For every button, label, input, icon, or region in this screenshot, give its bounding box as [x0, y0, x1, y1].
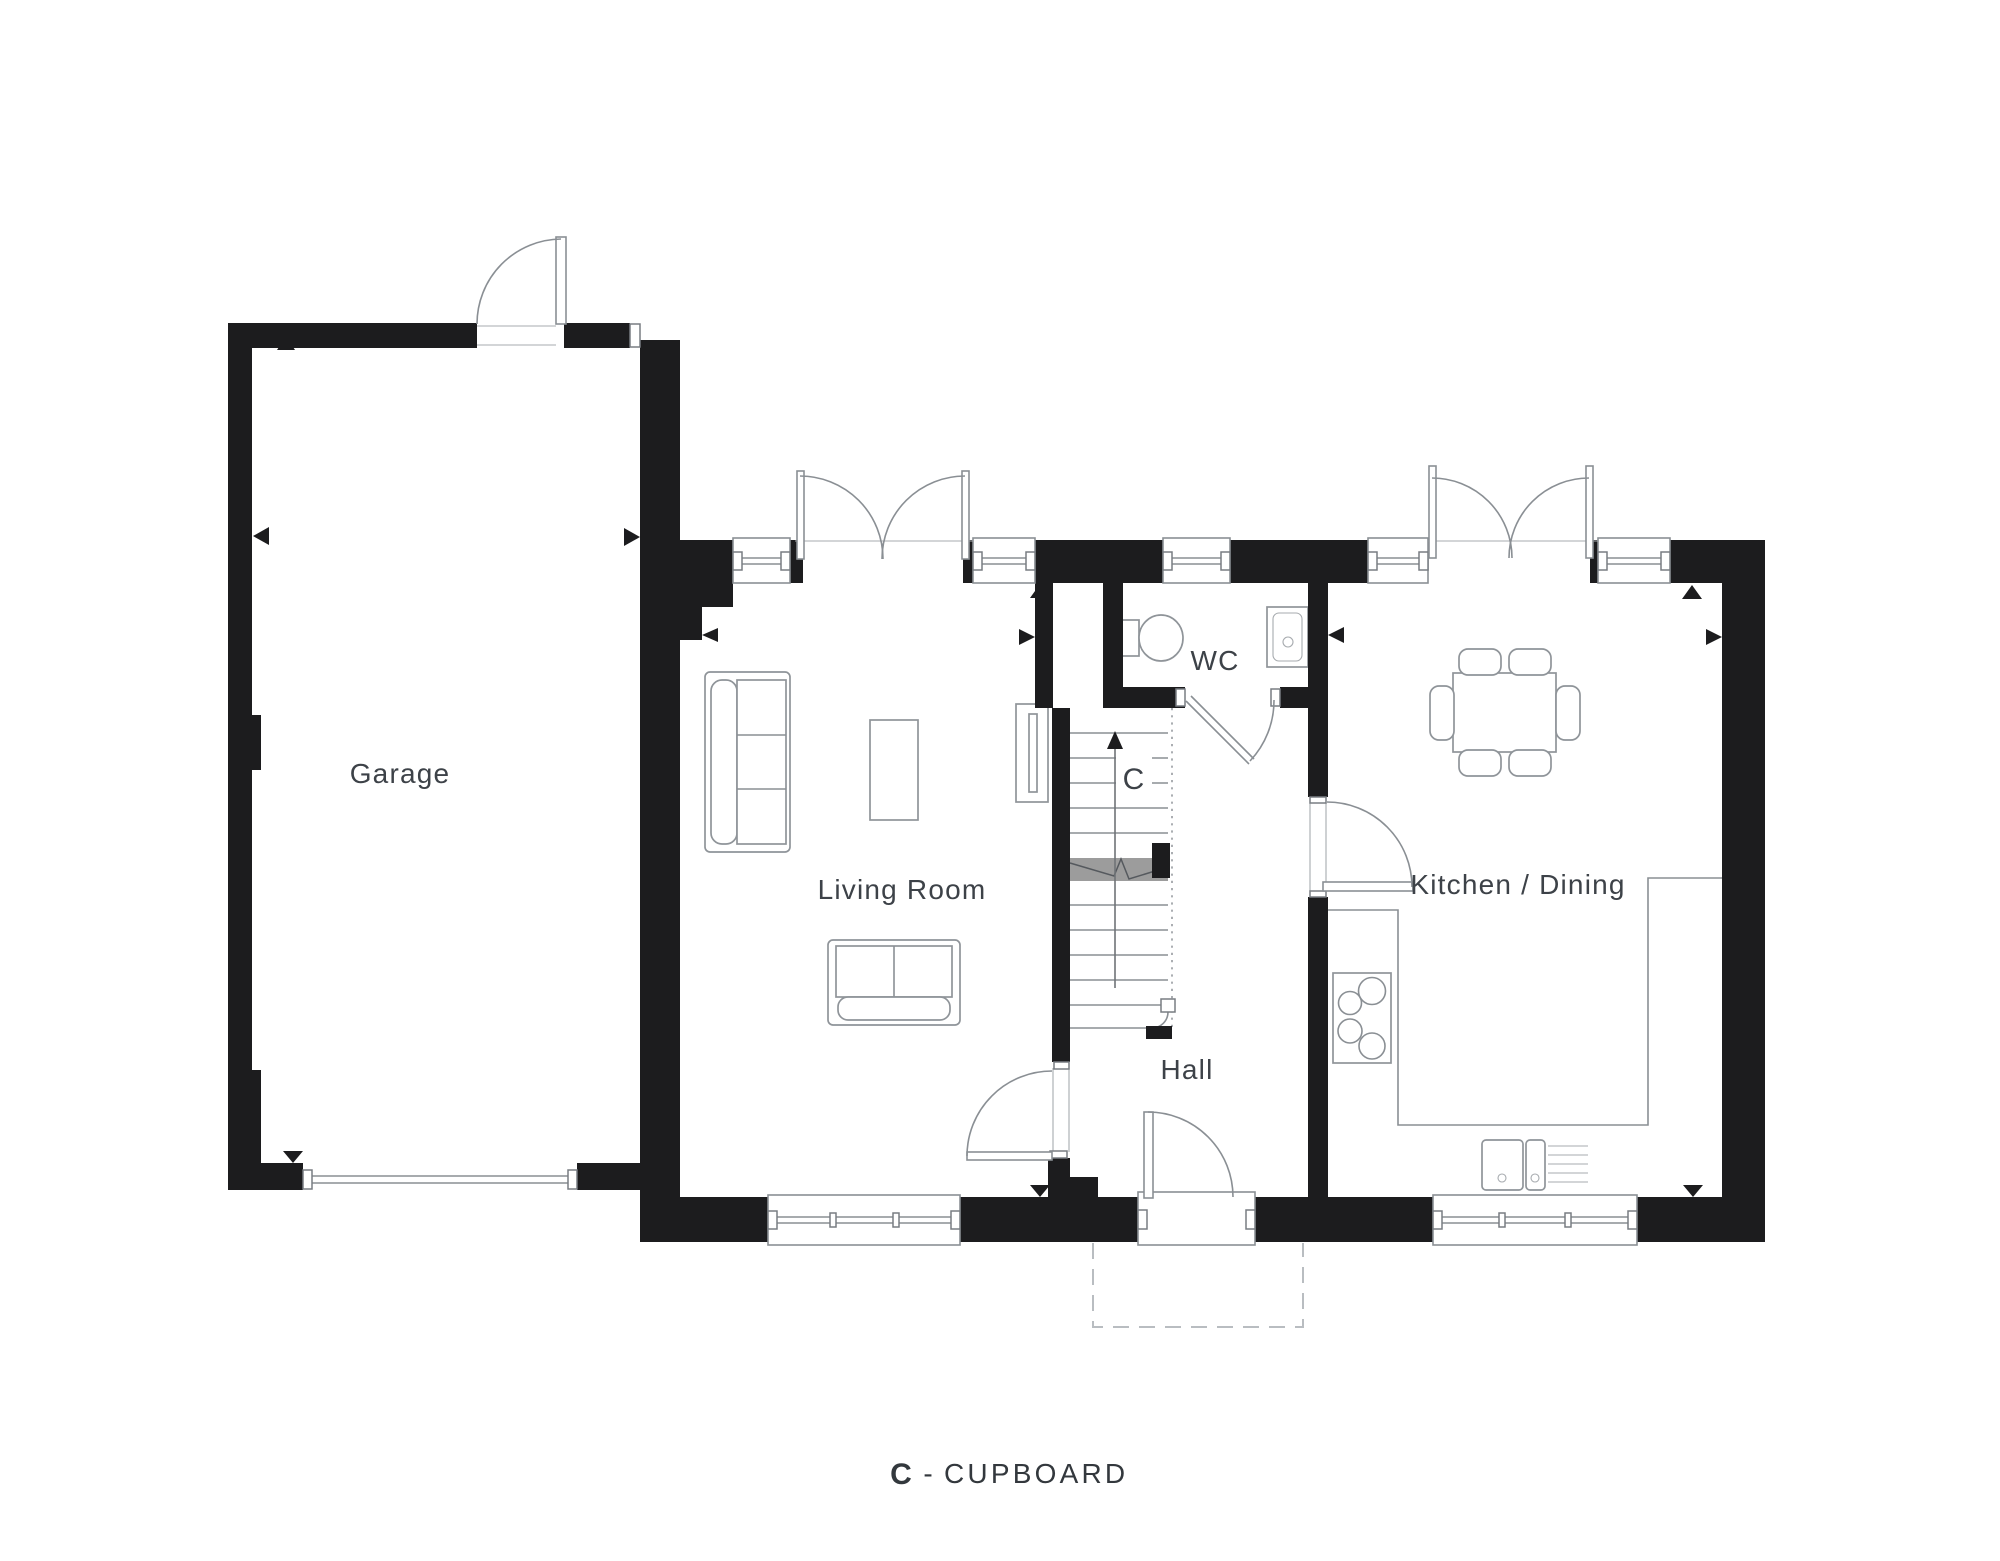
- window-icon: [1163, 538, 1230, 583]
- sofa-seat: [737, 680, 786, 844]
- garage-label: Garage: [350, 758, 451, 789]
- garage-west-wall-pier: [252, 715, 261, 770]
- marker-triangle-icon: [1019, 629, 1035, 645]
- kitchen-door-icon: [1310, 797, 1413, 897]
- window-jamb: [1221, 552, 1230, 570]
- walls: [228, 323, 1765, 1242]
- window-frame: [1598, 538, 1670, 583]
- living-room-stairs-wall: [1052, 708, 1070, 1062]
- window-icon: [1433, 1195, 1637, 1245]
- tv-unit-icon: [1016, 704, 1048, 802]
- door-leaf: [1429, 466, 1436, 558]
- marker-triangle-icon: [1328, 627, 1344, 643]
- north-wall: [640, 540, 733, 583]
- garage-west-wall-pier: [252, 1070, 261, 1163]
- hall-door-pier-step: [1070, 1177, 1098, 1197]
- dining-table: [1453, 673, 1556, 752]
- door-swing-arc: [1250, 700, 1274, 761]
- dining-set-icon: [1430, 649, 1580, 776]
- window-jamb: [1661, 552, 1670, 570]
- door-jamb: [1246, 1210, 1255, 1229]
- door-leaf: [962, 471, 969, 559]
- wall-end-cap: [1310, 797, 1326, 803]
- wc-west-wall: [1103, 583, 1123, 687]
- door-swing-arc: [1148, 1112, 1233, 1197]
- kitchen-dining-label: Kitchen / Dining: [1410, 869, 1625, 900]
- door-leaf: [556, 237, 566, 324]
- dining-chair: [1509, 649, 1551, 675]
- window-jamb: [1026, 552, 1035, 570]
- window-frame: [768, 1195, 960, 1245]
- sofa-back-cushion: [711, 680, 737, 844]
- wc-south-wall: [1103, 687, 1185, 708]
- stair-newel-block: [1146, 1026, 1172, 1039]
- hob-icon: [1333, 973, 1391, 1063]
- window-jamb: [733, 552, 742, 570]
- legend-key: C: [890, 1458, 912, 1491]
- garage-south-wall: [228, 1163, 303, 1190]
- window-jamb: [973, 552, 982, 570]
- wc-door-icon: [1176, 689, 1280, 764]
- garage-south-wall-pier: [577, 1163, 640, 1190]
- marker-triangle-icon: [702, 628, 718, 642]
- dining-chair: [1459, 750, 1501, 776]
- floor-plan-drawing: Garage Living Room WC C Hall Kitchen / D…: [0, 0, 2000, 1561]
- window-icon: [733, 538, 790, 583]
- hall-door-pier: [1048, 1158, 1070, 1197]
- window-icon: [973, 538, 1035, 583]
- window-jamb: [951, 1211, 960, 1229]
- coffee-table-icon: [870, 720, 918, 820]
- door-leaf-line: [1186, 701, 1249, 764]
- marker-triangle-icon: [1706, 629, 1722, 645]
- window-mullion: [1499, 1213, 1505, 1227]
- front-door-threshold: [1138, 1192, 1255, 1245]
- window-jamb: [1598, 552, 1607, 570]
- toilet-cistern: [1122, 620, 1139, 656]
- marker-triangle-icon: [624, 528, 640, 546]
- living-room-label: Living Room: [818, 874, 987, 905]
- dining-chair: [1509, 750, 1551, 776]
- window-mullion: [1565, 1213, 1571, 1227]
- south-wall: [960, 1197, 1138, 1242]
- window-jamb: [1419, 552, 1428, 570]
- door-swing-arc: [477, 239, 561, 324]
- sofa-icon: [705, 672, 790, 852]
- sofa-icon: [828, 940, 960, 1025]
- window-mullion: [830, 1213, 836, 1227]
- sofa-seat-cushion: [838, 997, 950, 1020]
- toilet-bowl: [1139, 615, 1183, 661]
- basin-icon: [1267, 607, 1308, 667]
- wc-label: WC: [1190, 645, 1239, 676]
- kitchen-fixtures: [1328, 649, 1722, 1190]
- door-swing-arc: [800, 476, 883, 559]
- house-east-wall: [1722, 540, 1765, 1242]
- wall-end-cap: [1310, 891, 1326, 897]
- door-leaf: [797, 471, 804, 559]
- door-swing-arc: [882, 476, 965, 559]
- hall-kitchen-wall: [1308, 897, 1328, 1197]
- marker-triangle-icon: [1683, 1185, 1703, 1197]
- window-jamb: [781, 552, 790, 570]
- south-wall: [1637, 1197, 1765, 1242]
- door-jamb: [1176, 689, 1185, 706]
- hall-label: Hall: [1160, 1054, 1213, 1085]
- garage-west-wall: [228, 323, 252, 1190]
- window-jamb: [768, 1211, 777, 1229]
- window-jamb: [1163, 552, 1172, 570]
- window-mullion: [893, 1213, 899, 1227]
- sink-icon: [1482, 1140, 1588, 1190]
- marker-triangle-icon: [1682, 585, 1702, 599]
- stair-bottom-edge: [1070, 1012, 1168, 1028]
- door-leaf: [1323, 882, 1413, 891]
- dining-chair: [1459, 649, 1501, 675]
- door-leaf: [967, 1152, 1052, 1160]
- south-wall: [640, 1197, 768, 1242]
- north-wall: [1230, 540, 1368, 583]
- north-wall: [1035, 540, 1163, 583]
- wc-south-wall-stub: [1280, 687, 1308, 708]
- garage-north-wall: [228, 323, 477, 348]
- door-swing-arc: [1327, 802, 1412, 887]
- legend: C - CUPBOARD: [890, 1458, 1128, 1491]
- marker-triangle-icon: [1030, 1185, 1050, 1197]
- door-swing-arc: [1432, 478, 1512, 558]
- dining-chair: [1556, 686, 1580, 740]
- marker-triangle-icon: [283, 1151, 303, 1163]
- window-jamb: [1368, 552, 1377, 570]
- french-doors-icon: [795, 471, 973, 559]
- stair-wall-pier: [1152, 843, 1170, 878]
- south-wall: [1255, 1197, 1433, 1242]
- wall-end-cap: [630, 324, 640, 347]
- toilet-icon: [1122, 615, 1183, 661]
- front-door-icon: [1138, 1112, 1255, 1245]
- window-frame: [1163, 538, 1230, 583]
- dining-chair: [1430, 686, 1454, 740]
- living-room-wc-wall: [1035, 583, 1053, 708]
- door-swing-arc: [1509, 478, 1589, 558]
- door-leaf-line: [1191, 696, 1254, 759]
- door-jamb: [1138, 1210, 1147, 1229]
- living-room-corner-step: [680, 607, 702, 640]
- french-doors-icon: [1428, 466, 1598, 558]
- window-icon: [768, 1195, 960, 1245]
- legend-label: CUPBOARD: [944, 1458, 1128, 1489]
- wc-kitchen-wall: [1308, 583, 1328, 797]
- wall-end-caps: [630, 324, 640, 347]
- door-jamb: [1271, 689, 1280, 706]
- house-west-wall: [640, 340, 680, 1197]
- floor-plan: Garage Living Room WC C Hall Kitchen / D…: [0, 0, 2000, 1561]
- window-jamb: [1433, 1211, 1442, 1229]
- cupboard-label: C: [1123, 763, 1146, 796]
- marker-triangle-icon: [253, 527, 269, 545]
- hob-outline: [1333, 973, 1391, 1063]
- doors: [303, 237, 1598, 1245]
- window-icon: [1368, 538, 1428, 583]
- porch-canopy-outline: [1093, 1243, 1303, 1327]
- stair-newel-cap: [1161, 999, 1175, 1012]
- garage-door-jamb: [568, 1170, 577, 1189]
- hall-door-icon: [967, 1062, 1069, 1160]
- wall-end-cap: [1054, 1062, 1069, 1069]
- garage-door-jamb: [303, 1170, 312, 1189]
- window-jamb: [1628, 1211, 1637, 1229]
- door-swing-arc: [967, 1071, 1052, 1156]
- living-room-furniture: [705, 672, 1048, 1025]
- legend-separator: -: [923, 1458, 932, 1489]
- garage-side-door-icon: [477, 237, 566, 345]
- window-frame: [1433, 1195, 1637, 1245]
- window-icon: [1598, 538, 1670, 583]
- door-leaf: [1144, 1112, 1153, 1198]
- tv-screen: [1029, 714, 1037, 792]
- garage-door-icon: [303, 1170, 577, 1189]
- garage-north-wall: [564, 323, 630, 348]
- door-leaf: [1586, 466, 1593, 558]
